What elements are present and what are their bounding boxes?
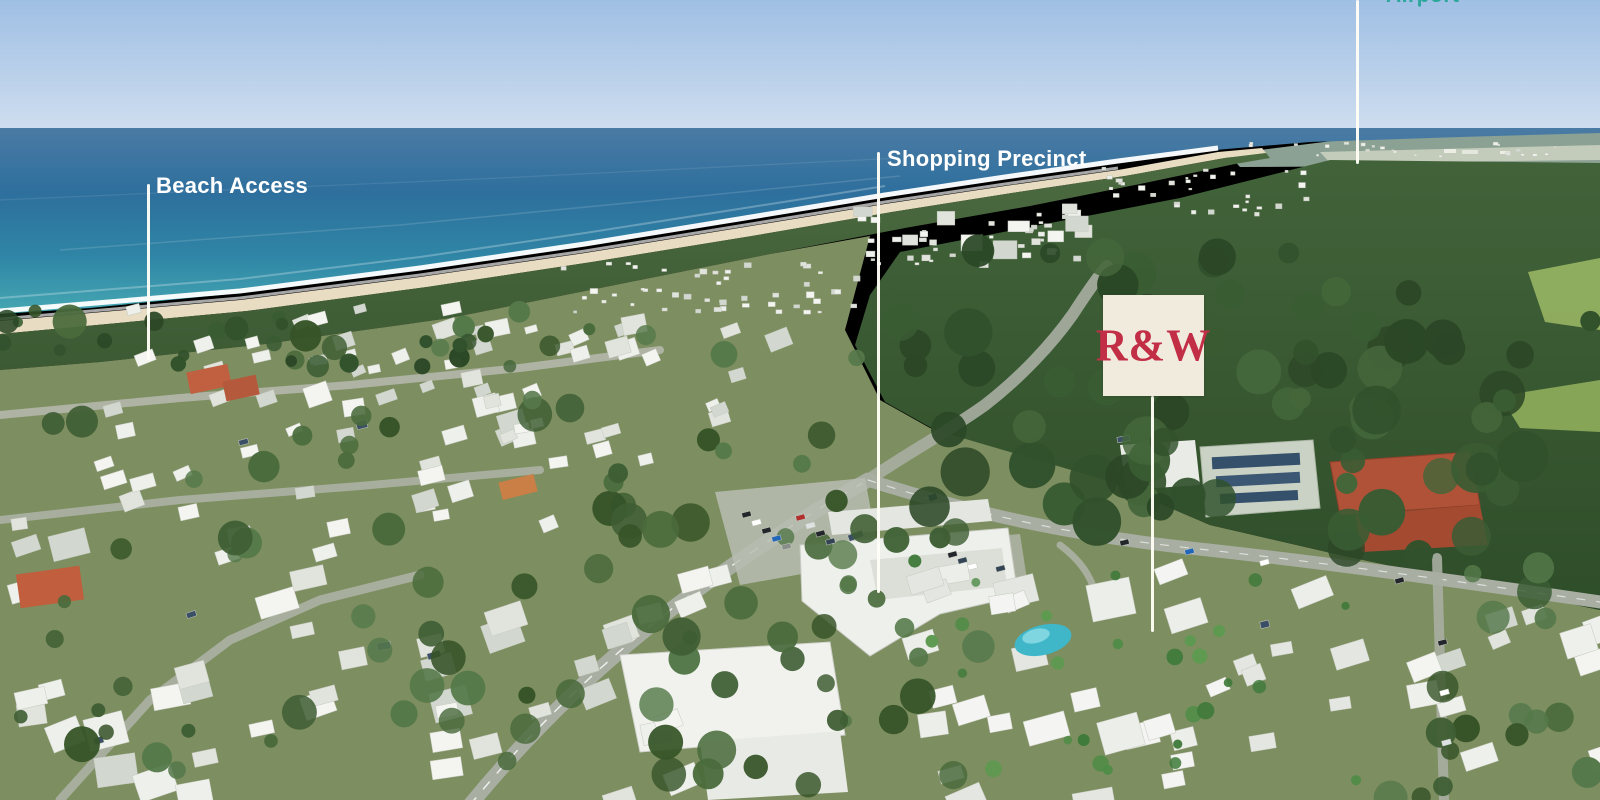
- tree: [1452, 715, 1480, 743]
- tree: [1111, 570, 1121, 580]
- tree: [1427, 671, 1459, 703]
- tree: [1199, 238, 1236, 275]
- tree: [439, 708, 465, 734]
- distant-building: [1169, 181, 1175, 185]
- distant-building: [866, 251, 875, 257]
- tree: [808, 421, 835, 448]
- distant-building: [1194, 175, 1198, 177]
- distant-building: [1439, 155, 1442, 157]
- distant-building: [1039, 222, 1043, 224]
- tree: [944, 308, 992, 356]
- tree: [1341, 602, 1349, 610]
- tree: [1384, 319, 1429, 364]
- distant-building: [773, 293, 779, 297]
- distant-building: [929, 260, 933, 262]
- distant-building: [1233, 205, 1239, 208]
- tree: [1224, 678, 1233, 687]
- distant-building: [1138, 186, 1145, 191]
- tree: [498, 752, 517, 771]
- distant-building: [818, 272, 822, 274]
- tree: [1086, 238, 1124, 276]
- distant-building: [907, 256, 913, 261]
- distant-building: [818, 311, 822, 313]
- tree: [1192, 649, 1207, 664]
- tree: [1293, 340, 1318, 365]
- tree: [900, 678, 936, 714]
- distant-building: [768, 302, 775, 307]
- tree: [367, 638, 392, 663]
- tree: [66, 406, 98, 438]
- tree: [1113, 639, 1123, 649]
- distant-building: [582, 296, 586, 299]
- distant-building: [804, 282, 809, 286]
- distant-building: [1048, 231, 1064, 242]
- distant-building: [1210, 175, 1215, 179]
- tree: [608, 463, 628, 483]
- tree: [1329, 426, 1356, 453]
- tree: [410, 668, 445, 703]
- distant-building: [993, 241, 1017, 259]
- tree: [1477, 601, 1510, 634]
- distant-building: [1521, 154, 1524, 156]
- house-roof: [11, 517, 28, 531]
- tree: [632, 595, 670, 633]
- tree: [185, 470, 203, 488]
- distant-building: [741, 296, 747, 301]
- tree: [1013, 410, 1046, 443]
- tree: [556, 394, 585, 423]
- tree: [1253, 680, 1267, 694]
- distant-building: [713, 271, 718, 274]
- tree: [904, 354, 927, 377]
- distant-building: [1276, 204, 1282, 209]
- distant-building: [1414, 154, 1416, 156]
- tree: [724, 586, 758, 620]
- distant-building: [606, 262, 611, 265]
- distant-building: [631, 303, 634, 306]
- tree: [113, 677, 132, 696]
- distant-building: [1044, 224, 1051, 228]
- distant-building: [1191, 210, 1196, 214]
- distant-building: [853, 207, 872, 217]
- tree: [1433, 776, 1453, 796]
- tree: [1213, 625, 1225, 637]
- tree: [618, 524, 642, 548]
- tree: [1040, 243, 1060, 263]
- tree: [985, 760, 1002, 777]
- distant-building: [1246, 201, 1249, 203]
- tree: [451, 671, 486, 706]
- tree: [1292, 291, 1323, 322]
- top-right-cropped-label: Airport: [1376, 0, 1526, 9]
- tree: [556, 679, 585, 708]
- house-roof: [549, 456, 569, 469]
- tree: [926, 635, 939, 648]
- distant-building: [662, 269, 667, 272]
- tree: [1073, 497, 1122, 546]
- tree: [264, 734, 278, 748]
- tree: [1404, 540, 1433, 569]
- tree: [908, 555, 921, 568]
- shopping-precinct-label: Shopping Precinct: [887, 146, 1086, 172]
- tree: [91, 703, 105, 717]
- tree: [276, 318, 288, 330]
- distant-building: [937, 211, 955, 225]
- tree: [639, 687, 673, 721]
- distant-building: [1294, 144, 1297, 146]
- tree: [1041, 610, 1052, 621]
- distant-building: [851, 304, 857, 308]
- tree: [503, 360, 516, 373]
- distant-building: [742, 304, 749, 308]
- rw-brand-logo: R&W: [1103, 295, 1204, 396]
- tree: [414, 358, 430, 374]
- tree: [477, 326, 494, 343]
- tree: [962, 234, 995, 267]
- tree: [351, 604, 375, 628]
- tree: [1103, 765, 1113, 775]
- tree: [64, 726, 100, 762]
- distant-building: [1392, 150, 1394, 151]
- distant-building: [672, 292, 678, 297]
- distant-building: [1301, 171, 1307, 175]
- distant-building: [1151, 193, 1156, 196]
- tree: [850, 514, 879, 543]
- distant-building: [1554, 146, 1557, 148]
- tree: [1290, 388, 1311, 409]
- distant-building: [892, 237, 901, 242]
- distant-building: [714, 307, 721, 311]
- distant-building: [1074, 256, 1081, 261]
- tree: [351, 406, 371, 426]
- tree: [1236, 349, 1281, 394]
- distant-building: [1304, 197, 1309, 201]
- distant-building: [903, 235, 918, 245]
- tree: [340, 436, 359, 455]
- tree: [58, 595, 71, 608]
- tree: [1051, 656, 1064, 669]
- distant-building: [590, 288, 598, 293]
- tree: [225, 316, 249, 340]
- distant-building: [1533, 154, 1537, 157]
- tree: [642, 511, 679, 548]
- tree: [42, 412, 65, 435]
- tree: [1278, 243, 1299, 264]
- distant-building: [1038, 232, 1044, 236]
- tree: [97, 333, 112, 348]
- tree: [648, 725, 683, 760]
- tree: [636, 325, 656, 345]
- distant-building: [696, 309, 701, 313]
- tree: [955, 617, 969, 631]
- tree: [1350, 311, 1381, 342]
- distant-building: [1041, 239, 1044, 241]
- tree: [266, 336, 282, 352]
- tree: [340, 353, 359, 372]
- distant-building: [1372, 145, 1375, 147]
- tree: [290, 320, 321, 351]
- distant-building: [1022, 253, 1031, 258]
- tree: [1580, 311, 1600, 331]
- tree: [767, 621, 798, 652]
- distant-building: [1493, 142, 1498, 145]
- distant-building: [813, 299, 820, 304]
- tree: [895, 618, 915, 638]
- distant-building: [989, 221, 995, 225]
- tree: [1466, 452, 1499, 485]
- distant-building: [776, 310, 782, 314]
- tree: [379, 417, 400, 438]
- distant-building: [1325, 145, 1329, 148]
- aerial-photo-stage: Beach Access Shopping Precinct R&W Airpo…: [0, 0, 1600, 800]
- tree: [171, 356, 186, 371]
- tree: [1249, 573, 1263, 587]
- distant-building: [1174, 204, 1179, 207]
- tree: [307, 355, 329, 377]
- distant-building: [933, 248, 937, 251]
- tree: [539, 336, 560, 357]
- tree: [697, 730, 736, 769]
- tree: [711, 341, 738, 368]
- distant-building: [700, 269, 707, 274]
- distant-building: [657, 289, 662, 292]
- tree: [511, 573, 537, 599]
- distant-building: [871, 259, 875, 261]
- distant-building: [1113, 193, 1119, 197]
- tree: [1215, 279, 1245, 309]
- tree: [453, 338, 468, 353]
- distant-building: [922, 255, 930, 261]
- distant-building: [1299, 183, 1306, 188]
- distant-building: [626, 262, 631, 264]
- distant-building: [930, 240, 937, 245]
- house-roof: [94, 753, 139, 788]
- beach-access-pointer-line: [147, 184, 150, 360]
- distant-building: [1316, 154, 1318, 156]
- distant-building: [801, 262, 807, 266]
- tree: [390, 700, 417, 727]
- tree: [181, 724, 195, 738]
- distant-building: [806, 292, 814, 298]
- distant-building: [717, 282, 721, 285]
- tree: [971, 578, 980, 587]
- tree: [1336, 473, 1357, 494]
- tree: [53, 305, 87, 339]
- tree: [1464, 565, 1481, 582]
- distant-building: [1366, 149, 1370, 152]
- distant-building: [920, 231, 928, 236]
- distant-building: [1545, 153, 1549, 155]
- distant-building: [1189, 188, 1192, 190]
- tree: [883, 527, 909, 553]
- tree: [1150, 428, 1179, 457]
- distant-building: [804, 310, 811, 314]
- tree: [372, 513, 405, 546]
- tree: [827, 710, 848, 731]
- distant-building: [602, 300, 606, 303]
- distant-building: [1186, 177, 1188, 179]
- distant-building: [695, 274, 700, 277]
- top-right-cropped-label-text: Airport: [1386, 0, 1460, 8]
- tree: [98, 724, 113, 739]
- tree: [431, 339, 449, 357]
- tree: [909, 648, 928, 667]
- house-roof: [989, 593, 1016, 615]
- tree: [1452, 517, 1491, 556]
- distant-building: [1062, 204, 1077, 214]
- distant-building: [1018, 244, 1024, 247]
- tree: [1535, 607, 1557, 629]
- tree: [711, 671, 738, 698]
- distant-building: [641, 288, 645, 290]
- tree: [1505, 723, 1528, 746]
- tree: [909, 486, 950, 527]
- distant-building: [1008, 221, 1030, 232]
- tree: [1506, 341, 1534, 369]
- tree: [879, 705, 908, 734]
- distant-building: [612, 294, 617, 297]
- tree: [941, 447, 990, 496]
- tree: [828, 540, 857, 569]
- tree: [518, 687, 535, 704]
- tree: [1321, 277, 1350, 306]
- tree: [793, 455, 811, 473]
- tree: [1173, 740, 1182, 749]
- distant-building: [1246, 195, 1250, 198]
- distant-building: [662, 308, 667, 311]
- tree: [939, 761, 967, 789]
- distant-building: [1107, 175, 1112, 179]
- beach-access-label: Beach Access: [156, 173, 308, 199]
- distant-building: [1116, 179, 1122, 182]
- tree: [1169, 757, 1181, 769]
- tree: [825, 490, 847, 512]
- tree: [14, 710, 28, 724]
- tree: [744, 755, 768, 779]
- distant-building: [834, 290, 840, 295]
- distant-building: [1032, 239, 1041, 245]
- tree: [662, 617, 700, 655]
- distant-building: [1285, 170, 1288, 172]
- distant-building: [1037, 213, 1042, 216]
- tree: [412, 567, 443, 598]
- distant-building: [720, 300, 727, 305]
- tree: [208, 322, 226, 340]
- tree: [1197, 702, 1214, 719]
- tree: [292, 426, 312, 446]
- tree: [282, 695, 317, 730]
- distant-building: [1102, 167, 1106, 170]
- tree: [248, 451, 279, 482]
- tree: [1497, 431, 1548, 482]
- tree: [1167, 649, 1184, 666]
- distant-building: [919, 238, 926, 242]
- distant-building: [868, 239, 874, 243]
- tree: [1493, 389, 1516, 412]
- shopping-precinct-pointer-line: [877, 152, 880, 593]
- distant-building: [1257, 207, 1262, 209]
- distant-building: [744, 263, 751, 268]
- distant-building: [1344, 142, 1349, 144]
- distant-building: [950, 254, 956, 257]
- tree: [218, 521, 253, 556]
- tree: [958, 669, 967, 678]
- distant-building: [1506, 152, 1511, 156]
- tree: [962, 630, 995, 663]
- distant-building: [1203, 169, 1208, 172]
- tree: [931, 412, 967, 448]
- distant-building: [724, 277, 729, 280]
- distant-building: [794, 305, 800, 308]
- sky: [0, 0, 1600, 132]
- tree: [46, 630, 64, 648]
- tree: [1396, 280, 1421, 305]
- tree: [882, 304, 919, 341]
- distant-building: [915, 263, 919, 265]
- top-right-pointer-line: [1356, 0, 1359, 164]
- tree: [510, 714, 540, 744]
- distant-building: [1380, 147, 1384, 150]
- tree: [584, 554, 613, 583]
- rw-pointer-line: [1151, 396, 1154, 632]
- tree: [1044, 366, 1076, 398]
- tree: [1544, 703, 1573, 732]
- tree: [583, 323, 595, 335]
- distant-building: [1243, 209, 1247, 212]
- distant-building: [684, 294, 691, 299]
- tree: [1424, 319, 1463, 358]
- tree: [431, 640, 466, 675]
- aerial-photo-scene: [0, 0, 1600, 800]
- distant-building: [989, 236, 993, 239]
- tree: [1009, 442, 1055, 488]
- tree: [848, 350, 865, 367]
- distant-building: [633, 265, 638, 268]
- house-roof: [917, 711, 948, 738]
- tree: [817, 674, 835, 692]
- tree: [1078, 734, 1090, 746]
- distant-building: [725, 270, 731, 273]
- tree: [1197, 479, 1236, 518]
- tree: [142, 742, 172, 772]
- tree: [54, 344, 66, 356]
- tree: [419, 335, 432, 348]
- distant-building: [1208, 210, 1214, 215]
- tree: [942, 518, 969, 545]
- tree: [715, 442, 732, 459]
- tree: [110, 538, 131, 559]
- tree: [285, 355, 297, 367]
- tree: [1352, 386, 1401, 435]
- tree: [652, 757, 687, 792]
- rw-logo-text: R&W: [1096, 319, 1211, 372]
- distant-building: [1186, 180, 1190, 183]
- distant-building: [574, 311, 577, 313]
- distant-building: [1231, 172, 1235, 175]
- tree: [1328, 509, 1370, 551]
- distant-building: [561, 266, 566, 270]
- distant-building: [1516, 149, 1521, 152]
- tree: [508, 301, 530, 323]
- distant-building: [853, 276, 860, 281]
- tree: [523, 391, 542, 410]
- tree: [812, 614, 837, 639]
- tree: [168, 761, 186, 779]
- distant-building: [1361, 143, 1365, 146]
- distant-building: [1066, 216, 1089, 231]
- tree: [1523, 552, 1554, 583]
- tree: [796, 772, 821, 797]
